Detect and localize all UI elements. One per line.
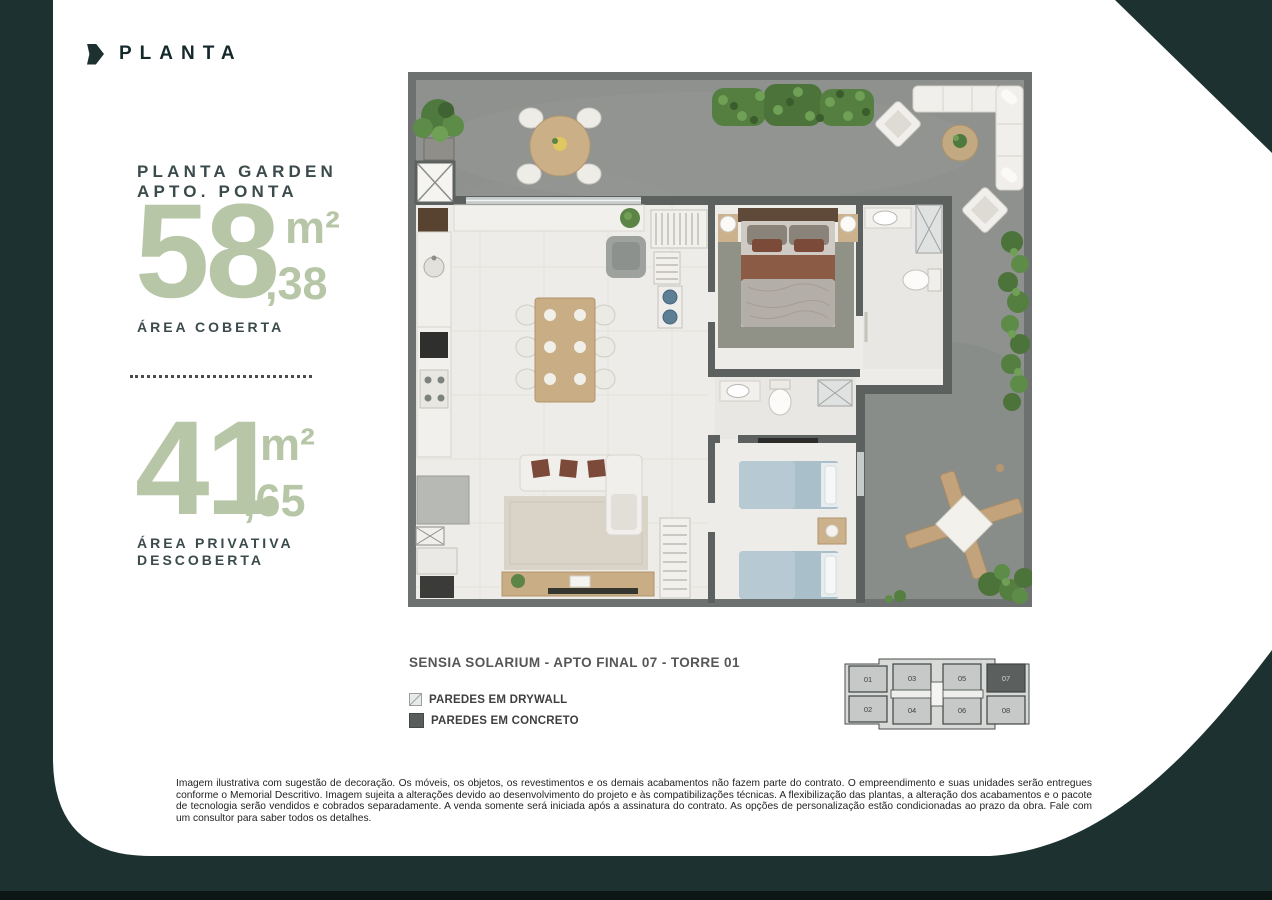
keyplan-unit-label: 07	[1002, 674, 1010, 683]
legend-item-concrete: PAREDES EM CONCRETO	[409, 713, 579, 728]
keyplan-unit-label: 06	[958, 706, 966, 715]
legend-label-concrete: PAREDES EM CONCRETO	[431, 715, 579, 727]
bottom-edge-strip	[0, 891, 1272, 900]
area-coberta-decimal: ,38	[265, 258, 328, 310]
dotted-divider	[130, 375, 312, 378]
area-coberta-label: ÁREA COBERTA	[137, 319, 284, 336]
floor-plan-svg	[408, 72, 1032, 607]
legend-item-drywall: PAREDES EM DRYWALL	[409, 693, 579, 706]
walls-legend: PAREDES EM DRYWALL PAREDES EM CONCRETO	[409, 693, 579, 735]
page-title: PLANTA	[87, 43, 243, 65]
plan-caption: SENSIA SOLARIUM - APTO FINAL 07 - TORRE …	[409, 655, 740, 670]
area-descoberta-unit: m²	[260, 419, 315, 471]
floor-plan-render	[408, 72, 1032, 607]
top-right-corner-triangle	[1115, 0, 1272, 153]
keyplan-unit-label: 01	[864, 675, 872, 684]
legend-label-drywall: PAREDES EM DRYWALL	[429, 694, 567, 706]
area-descoberta-label: ÁREA PRIVATIVA DESCOBERTA	[137, 535, 294, 569]
area-coberta-value: 58 m² ,38	[135, 200, 365, 330]
disclaimer-text: Imagem ilustrativa com sugestão de decor…	[176, 778, 1092, 825]
keyplan-unit-label: 03	[908, 674, 916, 683]
keyplan-unit-label: 02	[864, 705, 872, 714]
living-room	[502, 455, 654, 596]
keyplan: 01 03 05 07 02 04 06 08	[843, 652, 1031, 736]
area-descoberta-decimal: ,65	[243, 475, 306, 527]
area-descoberta-label-line1: ÁREA PRIVATIVA	[137, 535, 294, 552]
dining-area	[516, 298, 615, 402]
area-coberta-unit: m²	[285, 202, 340, 254]
keyplan-unit-label: 04	[908, 706, 916, 715]
concrete-swatch-icon	[409, 713, 424, 728]
keyplan-svg: 01 03 05 07 02 04 06 08	[843, 652, 1031, 736]
planta-arrow-icon	[87, 44, 104, 65]
drywall-swatch-icon	[409, 693, 422, 706]
bottom-dark-curve	[53, 650, 1272, 900]
area-descoberta-value: 41 m² ,65	[135, 417, 365, 547]
keyplan-unit-label: 08	[1002, 706, 1010, 715]
page-title-text: PLANTA	[119, 43, 243, 65]
keyplan-unit-label: 05	[958, 674, 966, 683]
left-dark-strip	[0, 0, 53, 900]
area-descoberta-label-line2: DESCOBERTA	[137, 552, 294, 569]
brochure-page: PLANTA PLANTA GARDEN APTO. PONTA 58 m² ,…	[0, 0, 1272, 900]
